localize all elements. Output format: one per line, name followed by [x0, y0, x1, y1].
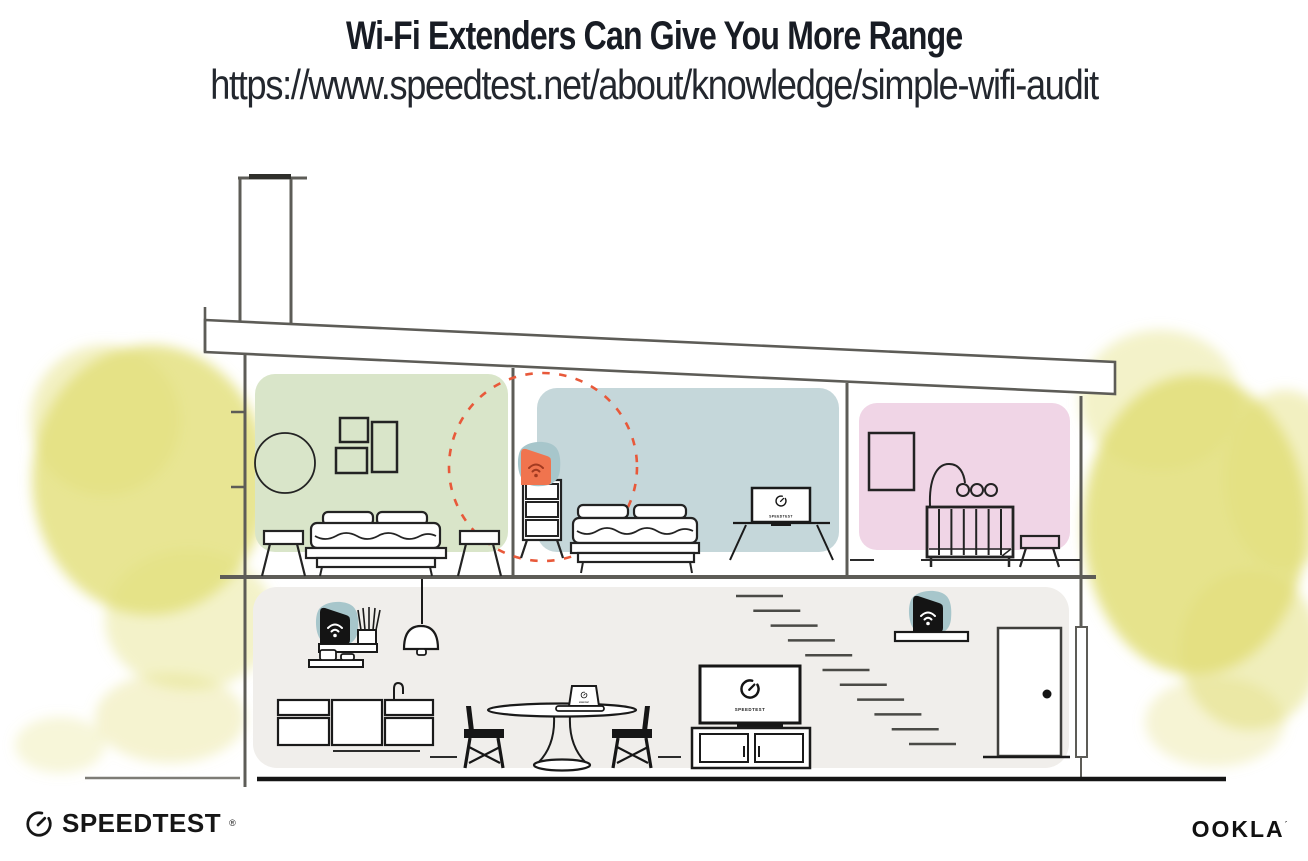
- speedtest-wordmark: SPEEDTEST: [62, 808, 221, 839]
- ground-line: [85, 778, 1226, 779]
- bed: [571, 505, 699, 573]
- infographic-page: Wi-Fi Extenders Can Give You More Range …: [0, 0, 1308, 861]
- ookla-wordmark: OOKLA: [1192, 816, 1285, 842]
- nightstand-right: [458, 531, 501, 576]
- ookla-logo: OOKLA´: [1192, 816, 1290, 843]
- ookla-tm-mark: ´: [1285, 820, 1290, 831]
- registered-mark: ®: [229, 819, 236, 828]
- tv-screen: [700, 666, 800, 723]
- house-illustration: SPEEDTEST: [0, 0, 1308, 861]
- tv-living-room: SPEEDTEST: [700, 666, 800, 727]
- laptop-screen-label: SPEEDTEST: [579, 702, 590, 704]
- speedtest-gauge-icon: [24, 809, 54, 839]
- nightstand-left: [262, 531, 305, 576]
- wifi-extender-bedroom-highlighted: [518, 442, 560, 486]
- foliage-right: [1080, 330, 1308, 767]
- speedtest-logo: SPEEDTEST®: [24, 808, 236, 839]
- tv-screen-label: SPEEDTEST: [735, 707, 766, 712]
- media-console: [692, 728, 810, 768]
- door-knob: [1043, 690, 1052, 699]
- foliage-left: [15, 345, 275, 773]
- tv-screen-label: SPEEDTEST: [769, 515, 793, 519]
- chimney: [238, 174, 307, 332]
- downspout: [1076, 627, 1087, 757]
